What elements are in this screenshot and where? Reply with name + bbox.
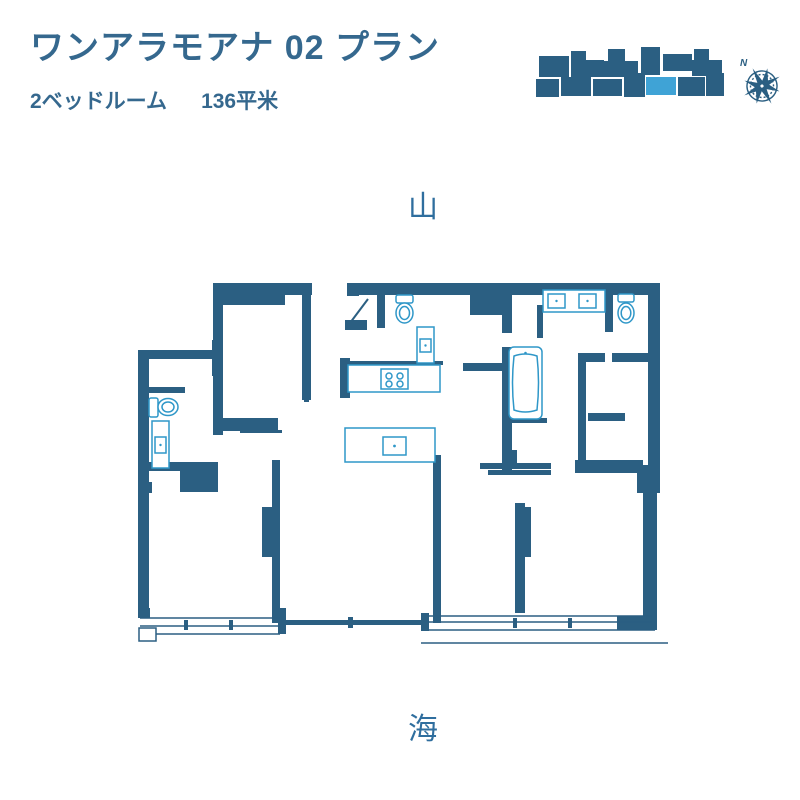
- master-toilet-icon: [618, 294, 634, 323]
- kitchen-counter: [348, 365, 440, 392]
- vanity-sink-icon: [152, 421, 169, 468]
- kitchen-island: [345, 428, 435, 462]
- powder-sink-icon: [417, 327, 434, 363]
- building-keyplan: [536, 47, 724, 97]
- bathtub-icon: [509, 347, 542, 419]
- floorplan-drawing: N: [0, 0, 800, 800]
- compass-rose-icon: N: [735, 58, 789, 113]
- floorplan-page: ワンアラモアナ 02 プラン 2ベッドルーム136平米 山 海: [0, 0, 800, 800]
- toilet-icon: [149, 398, 178, 417]
- highlighted-unit-02: [646, 77, 676, 95]
- powder-toilet-icon: [396, 295, 413, 323]
- compass-north-label: N: [740, 58, 748, 69]
- double-vanity-icon: [543, 290, 605, 312]
